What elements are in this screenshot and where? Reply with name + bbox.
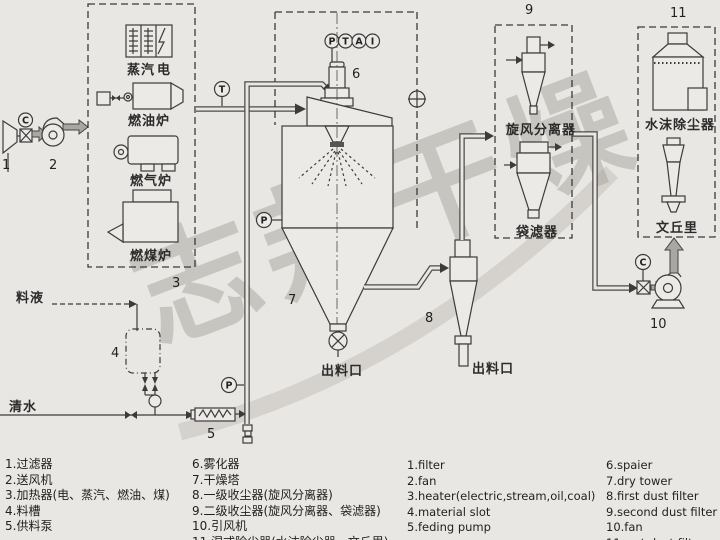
temperature-gauge: T <box>215 82 230 107</box>
tag-1: 1 <box>2 158 10 173</box>
legend-item: 2.fan <box>407 474 595 490</box>
legend-item: 6.雾化器 <box>192 457 388 473</box>
ptai-instrument-cluster: P T A I <box>325 34 380 64</box>
tag-8: 8 <box>425 311 433 326</box>
diagram-canvas: 志邦干燥 C <box>0 0 720 540</box>
legend-cn-left: 1.过滤器 2.送风机 3.加热器(电、蒸汽、燃油、煤) 4.料槽 5.供料泵 <box>5 457 170 535</box>
gauge-c-inlet: C <box>22 116 29 127</box>
gauge-p: P <box>329 37 336 48</box>
legend-item: 1.filter <box>407 458 595 474</box>
legend-item: 5.feding pump <box>407 520 595 536</box>
hot-air-pipe <box>196 104 306 115</box>
legend-item: 9.second dust filter <box>606 505 717 521</box>
legend-item: 10.引风机 <box>192 519 388 535</box>
legend-item: 3.加热器(电、蒸汽、燃油、煤) <box>5 488 170 504</box>
tag-11: 11 <box>670 6 687 21</box>
oil-furnace <box>97 83 183 109</box>
coal-furnace <box>108 190 178 242</box>
legend-item: 8.一级收尘器(旋风分离器) <box>192 488 388 504</box>
legend-item: 6.spaier <box>606 458 717 474</box>
label-oil-furnace: 燃油炉 <box>128 110 170 129</box>
legend-item: 9.二级收尘器(旋风分离器、袋滤器) <box>192 504 388 520</box>
cyclone-separator-9 <box>506 37 555 114</box>
legend-en-right: 6.spaier 7.dry tower 8.first dust filter… <box>606 458 717 540</box>
legend-item: 1.过滤器 <box>5 457 170 473</box>
legend-item: 11.wet dust filter <box>606 536 717 540</box>
tag-5: 5 <box>207 427 215 442</box>
arrow-into-heaters <box>63 120 88 134</box>
cyclone-8 <box>450 240 477 366</box>
fan-exhaust-arrow <box>665 238 683 273</box>
label-wet-scrubber: 水沫除尘器 <box>645 114 715 133</box>
tag-9: 9 <box>525 3 533 18</box>
legend-en-left: 1.filter 2.fan 3.heater(electric,stream,… <box>407 458 595 536</box>
gauge-p-tower: P <box>261 216 268 227</box>
legend-item: 11.湿式除尘器(水沫除尘器、文丘里) <box>192 535 388 540</box>
material-tank-4 <box>126 329 161 415</box>
gas-furnace <box>114 136 178 171</box>
tag-3: 3 <box>172 276 180 291</box>
gauge-a: A <box>355 37 363 48</box>
tag-6: 6 <box>352 67 360 82</box>
label-steam: 蒸汽 <box>127 59 155 78</box>
legend-item: 8.first dust filter <box>606 489 717 505</box>
label-cyclone-outlet: 出料口 <box>472 358 514 377</box>
fan-control-valve: C <box>636 255 651 295</box>
label-bag-filter: 袋滤器 <box>516 221 558 240</box>
vent-damper-symbol <box>408 90 426 108</box>
tower-to-cyclone-duct <box>364 263 449 287</box>
inlet-control-gauge: C <box>19 113 33 142</box>
tag-4: 4 <box>111 346 119 361</box>
legend-item: 7.dry tower <box>606 474 717 490</box>
drying-tower-7 <box>282 13 393 330</box>
legend-item: 3.heater(electric,stream,oil,coal) <box>407 489 595 505</box>
tag-2: 2 <box>49 158 57 173</box>
legend-item: 7.干燥塔 <box>192 473 388 489</box>
gauge-t: T <box>342 37 349 48</box>
tag-10: 10 <box>650 317 667 332</box>
induced-fan-10 <box>652 238 684 308</box>
label-feed-liquid: 料液 <box>16 287 44 306</box>
gauge-p-feed: P <box>226 381 233 392</box>
legend-item: 4.material slot <box>407 505 595 521</box>
feed-pressure-gauge: P <box>222 378 245 393</box>
feed-liquid-line <box>52 300 137 331</box>
tower-pressure-gauge: P <box>257 213 283 228</box>
gauge-t-air: T <box>219 85 226 96</box>
label-venturi: 文丘里 <box>656 217 698 236</box>
label-electric: 电 <box>157 59 171 78</box>
label-tower-outlet: 出料口 <box>321 360 363 379</box>
label-gas-furnace: 燃气炉 <box>130 170 172 189</box>
legend-item: 10.fan <box>606 520 717 536</box>
label-coal-furnace: 燃煤炉 <box>130 245 172 264</box>
tower-discharge-valve <box>329 324 347 357</box>
label-clean-water: 清水 <box>9 396 37 415</box>
gauge-i: I <box>371 37 375 48</box>
cyclone8-riser-pipe <box>462 131 494 240</box>
venturi <box>662 138 685 212</box>
supply-fan-2 <box>42 118 64 146</box>
legend-cn-right: 6.雾化器 7.干燥塔 8.一级收尘器(旋风分离器) 9.二级收尘器(旋风分离器… <box>192 457 388 540</box>
wet-scrubber <box>653 33 707 110</box>
tag-7: 7 <box>288 293 296 308</box>
bag-filter <box>504 142 562 218</box>
steam-electric-heater <box>126 25 172 57</box>
legend-item: 2.送风机 <box>5 473 170 489</box>
gauge-c-fan: C <box>640 258 647 269</box>
legend-item: 5.供料泵 <box>5 519 170 535</box>
legend-item: 4.料槽 <box>5 504 170 520</box>
label-cyclone-separator: 旋风分离器 <box>506 119 576 138</box>
